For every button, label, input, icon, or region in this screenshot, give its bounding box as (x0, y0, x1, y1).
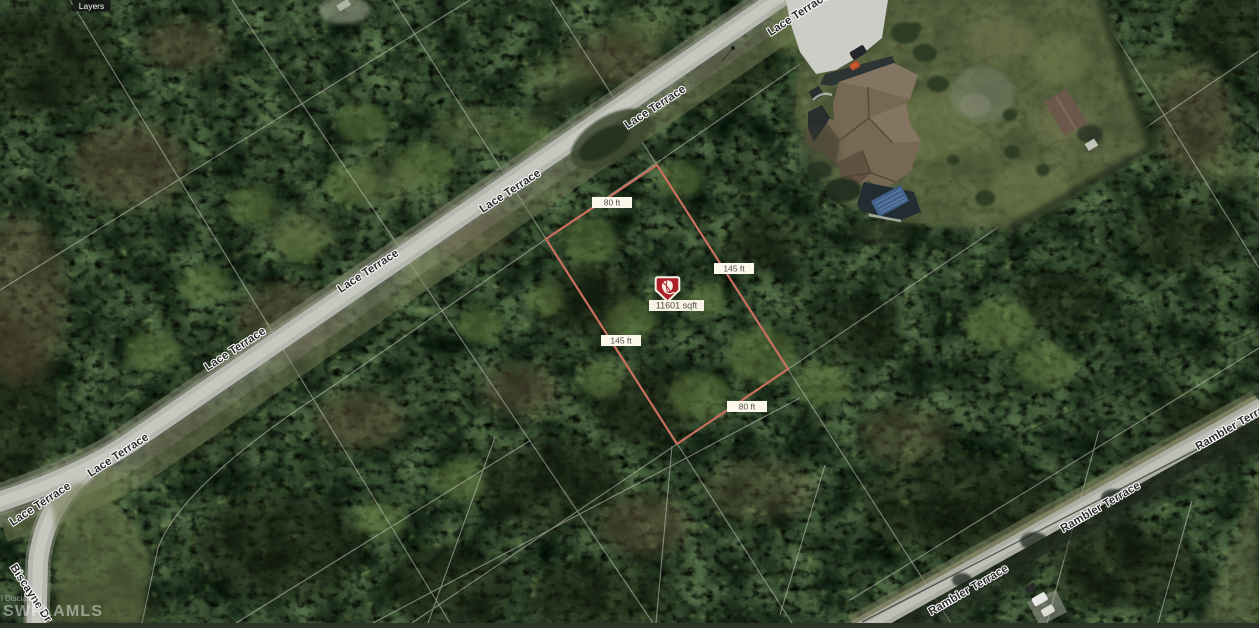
svg-text:l Disclaimer: l Disclaimer (1, 594, 43, 603)
svg-text:Layers: Layers (79, 1, 105, 11)
svg-text:SWFLAMLS: SWFLAMLS (3, 603, 103, 620)
svg-text:80 ft: 80 ft (604, 198, 621, 208)
svg-text:11601 sqft: 11601 sqft (656, 301, 698, 311)
svg-text:80 ft: 80 ft (739, 402, 756, 412)
svg-text:145 ft: 145 ft (723, 264, 745, 274)
svg-text:145 ft: 145 ft (610, 336, 632, 346)
